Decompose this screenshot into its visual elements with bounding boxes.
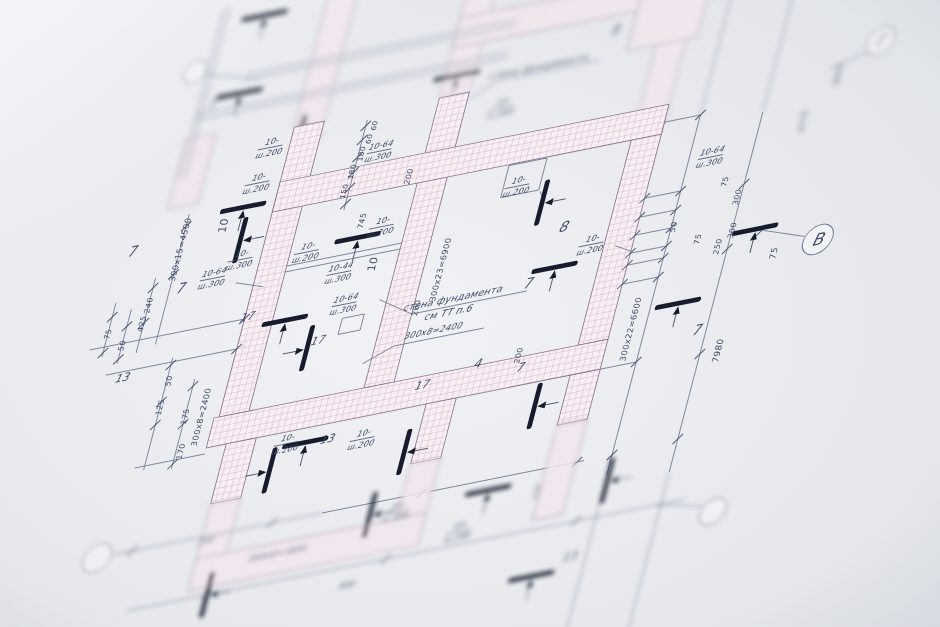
photo-vignette bbox=[0, 0, 940, 627]
blueprint-drawing: 747753600стена фундамента10-ш.2008Г 10-ш… bbox=[0, 0, 940, 627]
blueprint-photo: 747753600стена фундамента10-ш.2008Г 10-ш… bbox=[0, 0, 940, 627]
